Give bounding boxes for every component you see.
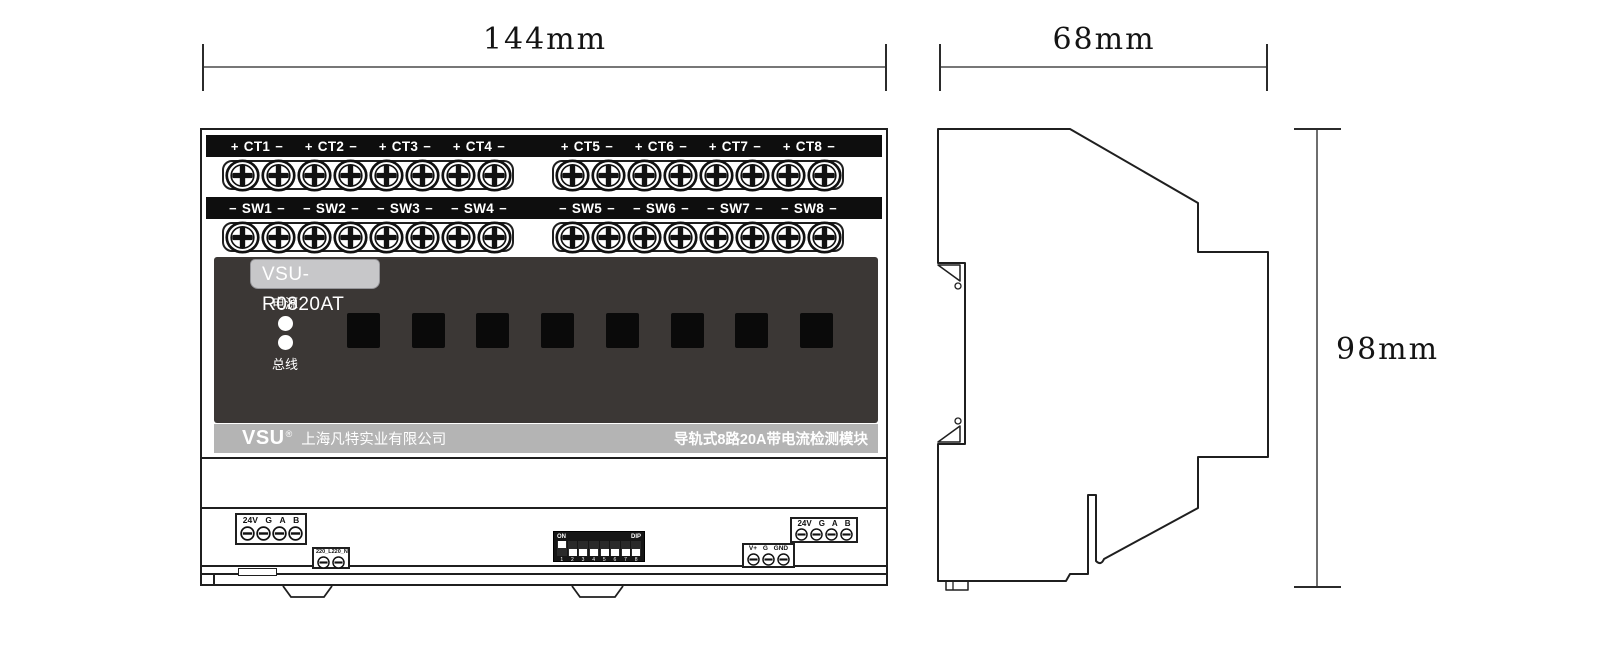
terminal-labels: 24VGAB <box>239 516 303 525</box>
dip-number: 2 <box>568 557 578 563</box>
dip-dip-label: DIP <box>631 534 641 540</box>
channel-window <box>606 313 639 348</box>
polarity-mark: + <box>453 139 461 154</box>
screw-terminal-icon <box>261 159 296 192</box>
channel-label: +CT7− <box>698 135 772 157</box>
dip-number: 7 <box>621 557 631 563</box>
polarity-mark: + <box>305 139 313 154</box>
channel-label: −SW1− <box>220 197 294 219</box>
polarity-mark: − <box>755 201 763 216</box>
sw-label-strip: −SW1−−SW2−−SW3−−SW4− −SW5−−SW6−−SW7−−SW8… <box>206 197 882 219</box>
section-line-1 <box>202 457 886 459</box>
screw-terminal-icon <box>591 159 626 192</box>
channel-label: +CT1− <box>220 135 294 157</box>
dip-number: 1 <box>557 557 567 563</box>
screw-terminal-icon <box>735 221 770 254</box>
polarity-mark: − <box>679 139 687 154</box>
screw-terminal-icon <box>663 159 698 192</box>
channel-window <box>671 313 704 348</box>
polarity-mark: + <box>635 139 643 154</box>
registered-mark: ® <box>286 429 293 439</box>
channel-name: CT3 <box>392 139 418 154</box>
polarity-mark: − <box>277 201 285 216</box>
screw-terminal-icon <box>441 221 476 254</box>
company-name: 上海凡特实业有限公司 <box>301 428 446 449</box>
polarity-mark: − <box>423 139 431 154</box>
polarity-mark: − <box>351 201 359 216</box>
sw-terminal-block-right <box>552 222 844 252</box>
dip-number: 8 <box>631 557 641 563</box>
polarity-mark: + <box>231 139 239 154</box>
channel-label: −SW8− <box>772 197 846 219</box>
polarity-mark: − <box>377 201 385 216</box>
dip-on-label: ON <box>557 534 566 540</box>
screw-terminal-icon <box>735 159 770 192</box>
channel-window <box>735 313 768 348</box>
din-clip-bottom <box>938 426 960 442</box>
terminal-screws <box>746 553 791 566</box>
dim-side-width-label: 68mm <box>989 22 1219 57</box>
channel-label: −SW6− <box>624 197 698 219</box>
power-led-label: 电源 <box>272 293 298 312</box>
dip-switch-down <box>600 541 610 556</box>
led-indicator-column: 电源 总线 <box>262 293 308 373</box>
screw-terminal-icon <box>441 159 476 192</box>
channel-window <box>412 313 445 348</box>
terminal-label: G <box>265 516 272 525</box>
screw-terminal-icon <box>477 221 512 254</box>
channel-name: CT6 <box>648 139 674 154</box>
product-name: 导轨式8路20A带电流检测模块 <box>674 428 868 449</box>
slot-screw-icon <box>256 526 271 541</box>
brand-left: VSU ® 上海凡特实业有限公司 <box>242 427 446 450</box>
screw-terminal-icon <box>591 221 626 254</box>
channel-name: CT8 <box>796 139 822 154</box>
slot-screw-icon <box>240 526 255 541</box>
slot-screw-icon <box>810 528 823 541</box>
base-band-step <box>213 573 215 586</box>
polarity-mark: − <box>497 139 505 154</box>
screw-terminal-icon <box>699 221 734 254</box>
screw-terminal-icon <box>771 221 806 254</box>
polarity-mark: + <box>783 139 791 154</box>
screw-terminal-icon <box>663 221 698 254</box>
dim-height-lines <box>1294 129 1341 587</box>
channel-window <box>347 313 380 348</box>
polarity-mark: − <box>753 139 761 154</box>
channel-label: −SW3− <box>368 197 442 219</box>
polarity-mark: + <box>709 139 717 154</box>
screw-terminal-icon <box>627 221 662 254</box>
terminal-label: B <box>293 516 299 525</box>
channel-name: CT4 <box>466 139 492 154</box>
screw-terminal-icon <box>369 159 404 192</box>
left-power-terminal-block: 24VGAB <box>235 513 307 545</box>
dip-knob <box>611 549 619 556</box>
clip-hook-top <box>955 283 961 289</box>
slot-screw-icon <box>825 528 838 541</box>
dim-front-width-label: 144mm <box>430 22 660 57</box>
dip-number: 3 <box>578 557 588 563</box>
dip-knob <box>569 549 577 556</box>
clip-hook-bottom <box>955 418 961 424</box>
slot-screw-icon <box>795 528 808 541</box>
slot-screw-icon <box>288 526 303 541</box>
terminal-label: 24V <box>797 520 811 528</box>
channel-window <box>800 313 833 348</box>
din-clip-top <box>938 265 960 281</box>
screw-terminal-icon <box>807 159 842 192</box>
dip-switch-numbers: 12345678 <box>557 557 641 563</box>
polarity-mark: − <box>275 139 283 154</box>
screw-terminal-icon <box>333 159 368 192</box>
screw-terminal-icon <box>225 159 260 192</box>
terminal-label: A <box>832 520 838 528</box>
channel-name: SW6 <box>646 201 676 216</box>
polarity-mark: − <box>681 201 689 216</box>
display-panel: VSU-R0820AT 电源 总线 <box>214 257 878 423</box>
dip-switch-track <box>557 541 641 556</box>
dim-height-label: 98mm <box>1336 332 1439 367</box>
screw-terminal-icon <box>333 221 368 254</box>
sw-group-right: −SW5−−SW6−−SW7−−SW8− <box>550 197 846 219</box>
dip-switch-down <box>578 541 588 556</box>
section-line-2 <box>202 507 886 509</box>
channel-label: −SW7− <box>698 197 772 219</box>
channel-label: +CT2− <box>294 135 368 157</box>
channel-label: +CT5− <box>550 135 624 157</box>
slot-screw-icon <box>777 553 790 566</box>
screw-terminal-icon <box>555 221 590 254</box>
slot-screw-icon <box>272 526 287 541</box>
front-view: +CT1−+CT2−+CT3−+CT4− +CT5−+CT6−+CT7−+CT8… <box>200 128 888 586</box>
ct-terminal-block-left <box>222 160 514 190</box>
right-power-terminal-block: 24VGAB <box>790 517 858 543</box>
terminal-label: 24V <box>243 516 258 525</box>
dip-knob <box>622 549 630 556</box>
polarity-mark: + <box>379 139 387 154</box>
page: { "dimensions": { "front_width": "144mm"… <box>0 0 1600 650</box>
polarity-mark: − <box>229 201 237 216</box>
slot-screw-icon <box>840 528 853 541</box>
screw-terminal-icon <box>225 221 260 254</box>
brand-bar: VSU ® 上海凡特实业有限公司 导轨式8路20A带电流检测模块 <box>214 424 878 453</box>
ct-terminal-block-right <box>552 160 844 190</box>
dip-number: 5 <box>600 557 610 563</box>
polarity-mark: − <box>499 201 507 216</box>
slot-screw-icon <box>747 553 760 566</box>
aux-power-terminal-block: V+GGND <box>742 543 795 568</box>
screw-terminal-icon <box>699 159 734 192</box>
terminal-label: B <box>845 520 851 528</box>
polarity-mark: − <box>633 201 641 216</box>
dip-knob <box>601 549 609 556</box>
screw-terminal-icon <box>405 221 440 254</box>
dip-switch-down <box>568 541 578 556</box>
polarity-mark: − <box>707 201 715 216</box>
slot-screw-icon <box>762 553 775 566</box>
terminal-screws <box>239 526 303 541</box>
screw-terminal-icon <box>555 159 590 192</box>
terminal-label: A <box>279 516 285 525</box>
channel-label: +CT8− <box>772 135 846 157</box>
brand-logo: VSU <box>242 427 285 450</box>
slot-screw-icon <box>332 556 345 569</box>
bus-led-label: 总线 <box>272 354 298 373</box>
dip-number: 6 <box>610 557 620 563</box>
base-band-line <box>202 573 886 575</box>
dip-knob <box>590 549 598 556</box>
polarity-mark: − <box>607 201 615 216</box>
polarity-mark: + <box>561 139 569 154</box>
screw-terminal-icon <box>771 159 806 192</box>
channel-label: +CT6− <box>624 135 698 157</box>
ct-group-right: +CT5−+CT6−+CT7−+CT8− <box>550 135 846 157</box>
polarity-mark: − <box>303 201 311 216</box>
polarity-mark: − <box>827 139 835 154</box>
ct-label-strip: +CT1−+CT2−+CT3−+CT4− +CT5−+CT6−+CT7−+CT8… <box>206 135 882 157</box>
polarity-mark: − <box>781 201 789 216</box>
bus-led-icon <box>278 335 293 350</box>
channel-name: SW2 <box>316 201 346 216</box>
dip-knob <box>632 549 640 556</box>
polarity-mark: − <box>349 139 357 154</box>
screw-terminal-icon <box>261 221 296 254</box>
terminal-labels: 24VGAB <box>794 520 854 528</box>
channel-label: −SW2− <box>294 197 368 219</box>
channel-label: −SW5− <box>550 197 624 219</box>
channel-name: SW3 <box>390 201 420 216</box>
polarity-mark: − <box>451 201 459 216</box>
channel-label: +CT3− <box>368 135 442 157</box>
dip-switch-up <box>557 541 567 556</box>
channel-name: CT1 <box>244 139 270 154</box>
channel-name: CT7 <box>722 139 748 154</box>
polarity-mark: − <box>605 139 613 154</box>
polarity-mark: − <box>559 201 567 216</box>
channel-name: CT5 <box>574 139 600 154</box>
dip-switch-down <box>621 541 631 556</box>
polarity-mark: − <box>425 201 433 216</box>
front-feet <box>283 586 623 597</box>
model-name-tab: VSU-R0820AT <box>250 259 380 289</box>
screw-terminal-icon <box>369 221 404 254</box>
channel-name: CT2 <box>318 139 344 154</box>
sw-terminal-block-left <box>222 222 514 252</box>
screw-terminal-icon <box>807 221 842 254</box>
screw-terminal-icon <box>405 159 440 192</box>
channel-window <box>476 313 509 348</box>
screw-terminal-icon <box>477 159 512 192</box>
terminal-screws <box>316 556 346 569</box>
channel-label: −SW4− <box>442 197 516 219</box>
dip-knob <box>579 549 587 556</box>
screw-terminal-icon <box>297 159 332 192</box>
side-foot <box>946 581 968 590</box>
sw-group-left: −SW1−−SW2−−SW3−−SW4− <box>220 197 516 219</box>
dip-switch-down <box>610 541 620 556</box>
channel-name: SW7 <box>720 201 750 216</box>
ct-group-left: +CT1−+CT2−+CT3−+CT4− <box>220 135 516 157</box>
dip-switch-header: ON DIP <box>557 534 641 540</box>
polarity-mark: − <box>829 201 837 216</box>
dip-knob <box>558 541 566 548</box>
dip-switch-down <box>589 541 599 556</box>
dip-number: 4 <box>589 557 599 563</box>
channel-name: SW8 <box>794 201 824 216</box>
slot-screw-icon <box>317 556 330 569</box>
terminal-screws <box>794 528 854 541</box>
channel-window-row <box>347 313 833 349</box>
screw-terminal-icon <box>297 221 332 254</box>
channel-name: SW1 <box>242 201 272 216</box>
screw-terminal-icon <box>627 159 662 192</box>
power-led-icon <box>278 316 293 331</box>
channel-name: SW5 <box>572 201 602 216</box>
channel-window <box>541 313 574 348</box>
dip-switch-block: ON DIP 12345678 <box>553 531 645 562</box>
channel-label: +CT4− <box>442 135 516 157</box>
terminal-label: G <box>819 520 825 528</box>
channel-name: SW4 <box>464 201 494 216</box>
base-small-tab <box>238 568 277 576</box>
ac-input-terminal-block: 220_L220_N <box>312 547 350 569</box>
side-view-outline <box>938 129 1268 590</box>
dip-switch-down <box>631 541 641 556</box>
